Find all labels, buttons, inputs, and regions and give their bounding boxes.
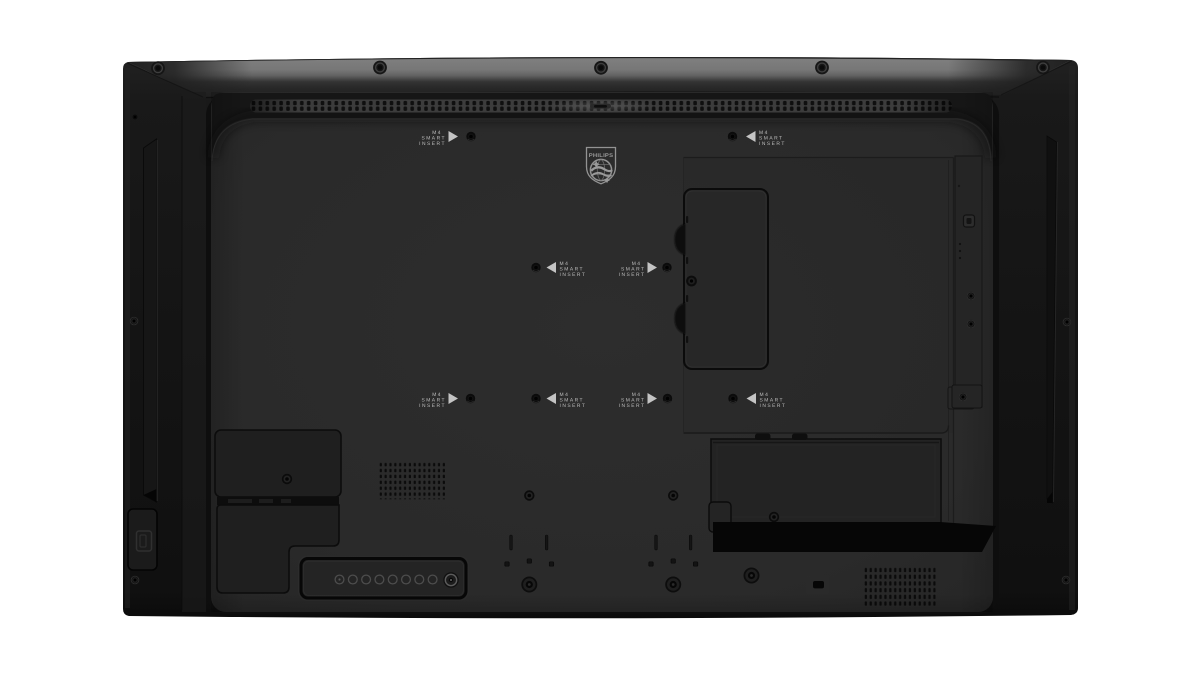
- svg-text:PHILIPS: PHILIPS: [589, 153, 614, 159]
- svg-text:M4: M4: [759, 130, 769, 136]
- svg-text:M4: M4: [432, 392, 442, 398]
- svg-text:SMART: SMART: [759, 136, 784, 142]
- svg-text:INSERT: INSERT: [419, 141, 446, 147]
- svg-text:M4: M4: [632, 392, 642, 398]
- svg-text:SMART: SMART: [760, 398, 785, 404]
- svg-text:INSERT: INSERT: [760, 403, 787, 409]
- svg-text:SMART: SMART: [421, 136, 446, 142]
- svg-text:M4: M4: [432, 130, 442, 136]
- svg-text:INSERT: INSERT: [419, 403, 446, 409]
- svg-text:SMART: SMART: [621, 267, 646, 273]
- svg-text:SMART: SMART: [621, 398, 646, 404]
- svg-text:INSERT: INSERT: [560, 272, 587, 278]
- svg-text:M4: M4: [560, 392, 570, 398]
- svg-text:M4: M4: [760, 392, 770, 398]
- svg-text:M4: M4: [560, 261, 570, 267]
- svg-text:INSERT: INSERT: [619, 403, 646, 409]
- svg-text:SMART: SMART: [560, 267, 585, 273]
- svg-text:M4: M4: [632, 261, 642, 267]
- svg-text:INSERT: INSERT: [759, 141, 786, 147]
- svg-text:INSERT: INSERT: [619, 272, 646, 278]
- svg-text:INSERT: INSERT: [560, 403, 587, 409]
- svg-text:SMART: SMART: [560, 398, 585, 404]
- svg-text:SMART: SMART: [421, 398, 446, 404]
